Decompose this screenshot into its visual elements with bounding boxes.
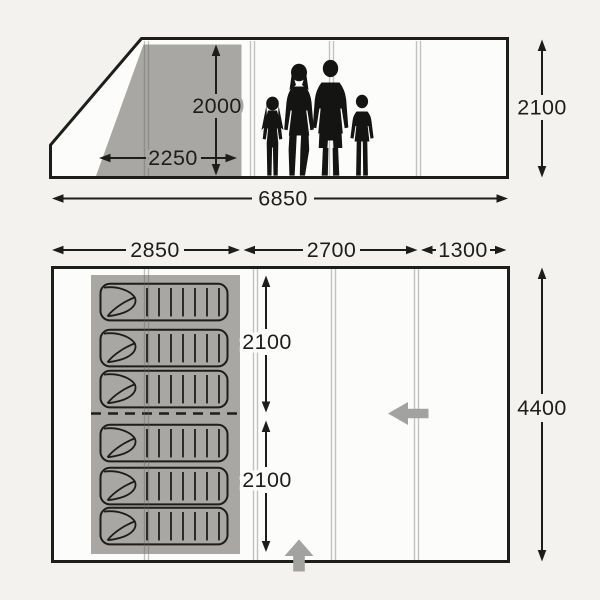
dim-label-2700: 2700 xyxy=(307,238,356,262)
floor-plan-view: 2850 2700 1300 2100 xyxy=(52,238,567,572)
dim-label-6850: 6850 xyxy=(258,187,307,211)
dim-label-2100-bottom: 2100 xyxy=(242,468,291,492)
dim-overall-depth: 4400 xyxy=(517,268,566,562)
side-elevation-view: 2000 2250 6850 2100 xyxy=(51,39,567,211)
dim-total-length: 6850 xyxy=(52,187,508,211)
diagram-svg: 2000 2250 6850 2100 xyxy=(0,0,600,600)
dim-label-1300: 1300 xyxy=(438,238,487,262)
dim-label-4400: 4400 xyxy=(517,396,566,420)
dim-living-section-width: 2700 xyxy=(244,238,418,262)
dim-label-2850: 2850 xyxy=(130,238,179,262)
dim-label-2000: 2000 xyxy=(192,94,241,118)
dim-label-2250: 2250 xyxy=(148,146,197,170)
dim-label-2100-top: 2100 xyxy=(242,330,291,354)
dim-overall-height: 2100 xyxy=(517,40,566,178)
tent-dimensions-diagram: 2000 2250 6850 2100 xyxy=(0,0,600,600)
dim-bedroom-section-width: 2850 xyxy=(52,238,240,262)
dim-label-2100-height: 2100 xyxy=(517,96,566,120)
dim-front-section-width: 1300 xyxy=(421,238,507,262)
